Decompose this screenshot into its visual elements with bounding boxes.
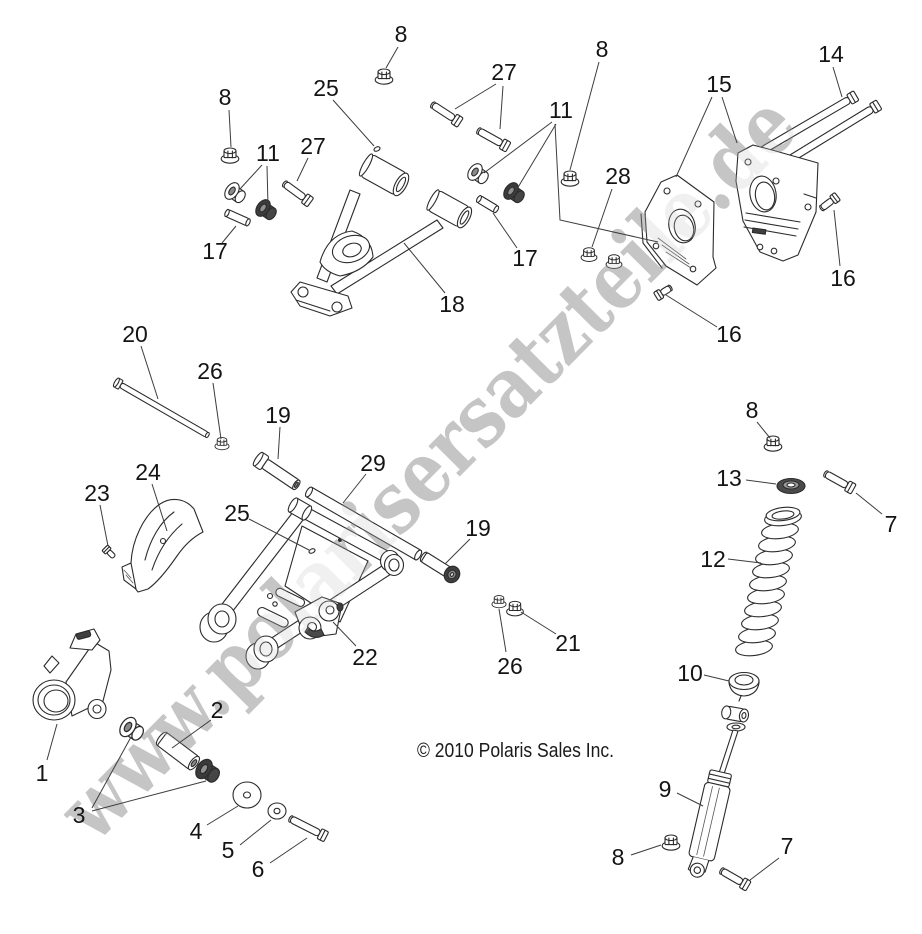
leader-line-7 xyxy=(750,858,779,880)
callout-21: 21 xyxy=(555,630,581,656)
part-27-bolt xyxy=(475,125,511,152)
leader-line-26 xyxy=(213,383,221,439)
leader-line-16 xyxy=(666,295,717,327)
leader-line-8 xyxy=(757,422,770,438)
part-8-nut xyxy=(561,171,579,186)
copyright-text: © 2010 Polaris Sales Inc. xyxy=(417,740,614,762)
leader-line-8 xyxy=(386,47,398,68)
leader-line-14 xyxy=(833,67,842,97)
callout-9: 9 xyxy=(659,776,672,802)
leader-line-6 xyxy=(270,838,307,863)
part-8-nut xyxy=(375,69,393,84)
callout-18: 18 xyxy=(439,291,465,317)
part-11-bushing xyxy=(465,161,492,188)
leader-line-19 xyxy=(445,539,470,564)
part-7-bolt xyxy=(822,468,856,494)
callout-26: 26 xyxy=(197,358,223,384)
part-26-nut xyxy=(215,438,229,450)
callout-28: 28 xyxy=(605,163,631,189)
part-24-guard xyxy=(122,499,203,592)
leader-line-18 xyxy=(404,243,445,293)
callout-17: 17 xyxy=(202,238,228,264)
leader-line-20 xyxy=(141,346,158,399)
part-1-knuckle xyxy=(33,629,111,720)
leader-line-23 xyxy=(100,505,108,546)
part-17-spacer xyxy=(475,195,499,214)
part-26-nut xyxy=(492,596,506,608)
part-10-spring-retainer xyxy=(729,673,759,702)
callout-26: 26 xyxy=(497,653,523,679)
part-11-bushing xyxy=(501,180,528,207)
callout-12: 12 xyxy=(700,546,726,572)
part-13-spring-retainer xyxy=(777,479,805,494)
callout-5: 5 xyxy=(222,837,235,863)
leader-line-19 xyxy=(278,427,280,459)
callout-8: 8 xyxy=(612,844,625,870)
callout-14: 14 xyxy=(818,41,844,67)
leader-line-13 xyxy=(746,480,776,484)
part-11-bushing xyxy=(253,197,280,224)
leader-line-4 xyxy=(207,806,238,825)
callout-4: 4 xyxy=(190,818,203,844)
callout-8: 8 xyxy=(219,84,232,110)
callout-19: 19 xyxy=(465,515,491,541)
callout-15: 15 xyxy=(706,71,732,97)
callout-24: 24 xyxy=(135,459,161,485)
part-27-bolt xyxy=(428,99,463,127)
part-27-bolt xyxy=(280,178,313,206)
leader-line-26 xyxy=(499,609,506,652)
callout-16: 16 xyxy=(830,265,856,291)
part-12-spring xyxy=(735,505,803,657)
callout-27: 27 xyxy=(491,59,517,85)
callout-8: 8 xyxy=(596,36,609,62)
callout-2: 2 xyxy=(211,697,224,723)
leader-line-7 xyxy=(856,493,882,514)
part-5-washer xyxy=(268,803,286,819)
part-25-rivet xyxy=(373,146,380,152)
callout-17: 17 xyxy=(512,245,538,271)
part-7-bolt xyxy=(718,865,751,891)
leader-line-8 xyxy=(631,845,661,855)
part-4-washer xyxy=(233,782,261,808)
leader-line-16 xyxy=(834,210,840,266)
leader-line-27 xyxy=(500,86,503,129)
callout-29: 29 xyxy=(360,450,386,476)
callout-3: 3 xyxy=(73,802,86,828)
leader-line-10 xyxy=(704,675,729,681)
callout-1: 1 xyxy=(36,760,49,786)
callout-27: 27 xyxy=(300,133,326,159)
callout-7: 7 xyxy=(781,833,794,859)
callout-8: 8 xyxy=(395,21,408,47)
callout-22: 22 xyxy=(352,644,378,670)
callout-19: 19 xyxy=(265,402,291,428)
part-8-nut xyxy=(221,148,239,163)
part-19-sleeve xyxy=(417,548,462,585)
part-23-bolt xyxy=(102,545,117,560)
callout-23: 23 xyxy=(84,480,110,506)
part-6-bolt xyxy=(287,813,329,842)
exploded-parts-diagram: www.polarisersatzteile.de xyxy=(0,0,922,934)
callout-13: 13 xyxy=(716,465,742,491)
callout-11: 11 xyxy=(549,97,573,123)
leader-line-27 xyxy=(455,84,496,109)
part-19-sleeve xyxy=(252,451,303,493)
callout-6: 6 xyxy=(252,856,265,882)
callout-25: 25 xyxy=(313,75,339,101)
callout-10: 10 xyxy=(677,660,703,686)
leader-line-25 xyxy=(333,100,374,146)
callout-11: 11 xyxy=(256,140,280,166)
leader-line-5 xyxy=(240,820,271,845)
part-16-bolt xyxy=(818,192,841,212)
leader-line-11 xyxy=(240,165,262,189)
part-8-nut xyxy=(662,835,680,850)
callout-16: 16 xyxy=(716,321,742,347)
leader-line-9 xyxy=(677,793,703,806)
part-17-spacer xyxy=(224,209,251,227)
callout-8: 8 xyxy=(746,397,759,423)
part-9-shock xyxy=(684,705,749,880)
part-20-shaft xyxy=(112,377,211,440)
callout-20: 20 xyxy=(122,321,148,347)
leader-line-17 xyxy=(493,213,517,248)
callout-7: 7 xyxy=(885,511,898,537)
leader-line-27 xyxy=(297,158,308,181)
leader-line-8 xyxy=(229,110,231,147)
leader-line-1 xyxy=(47,724,57,760)
part-21-nut xyxy=(507,601,524,615)
callout-25: 25 xyxy=(224,500,250,526)
part-8-nut xyxy=(764,436,782,451)
leader-line-21 xyxy=(521,612,556,634)
leader-line-8 xyxy=(570,62,599,170)
parts-diagram-canvas: www.polarisersatzteile.de xyxy=(0,0,922,934)
